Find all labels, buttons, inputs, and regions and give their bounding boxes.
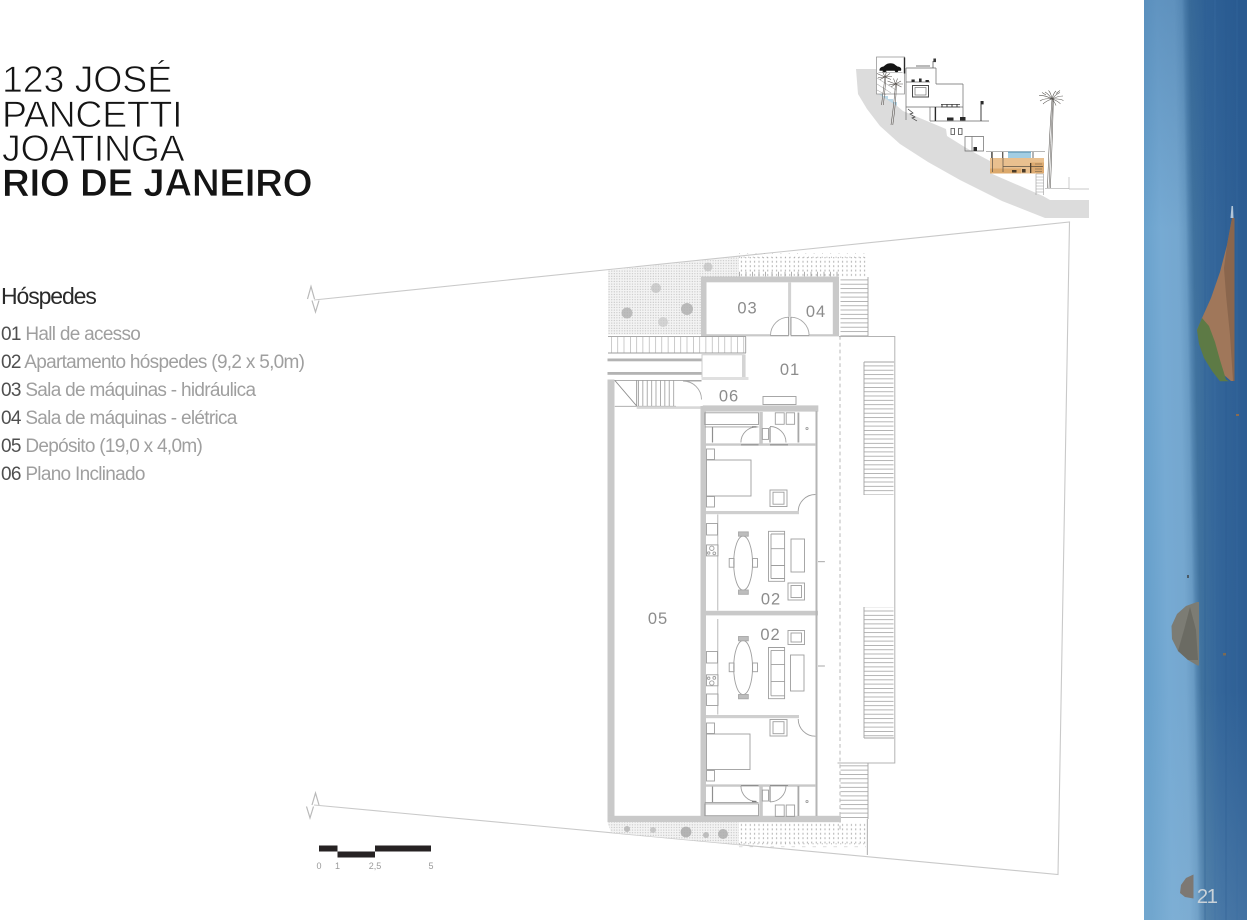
svg-text:5: 5: [428, 861, 433, 871]
svg-text:2,5: 2,5: [369, 861, 382, 871]
svg-text:01: 01: [780, 361, 800, 379]
svg-text:06: 06: [719, 388, 739, 406]
svg-text:03: 03: [737, 300, 757, 318]
svg-text:1: 1: [335, 861, 340, 871]
svg-text:0: 0: [316, 861, 321, 871]
svg-text:05: 05: [648, 610, 668, 628]
svg-text:02: 02: [761, 591, 781, 609]
svg-text:04: 04: [806, 303, 826, 321]
svg-text:21: 21: [1197, 885, 1218, 908]
svg-text:02: 02: [760, 626, 780, 644]
